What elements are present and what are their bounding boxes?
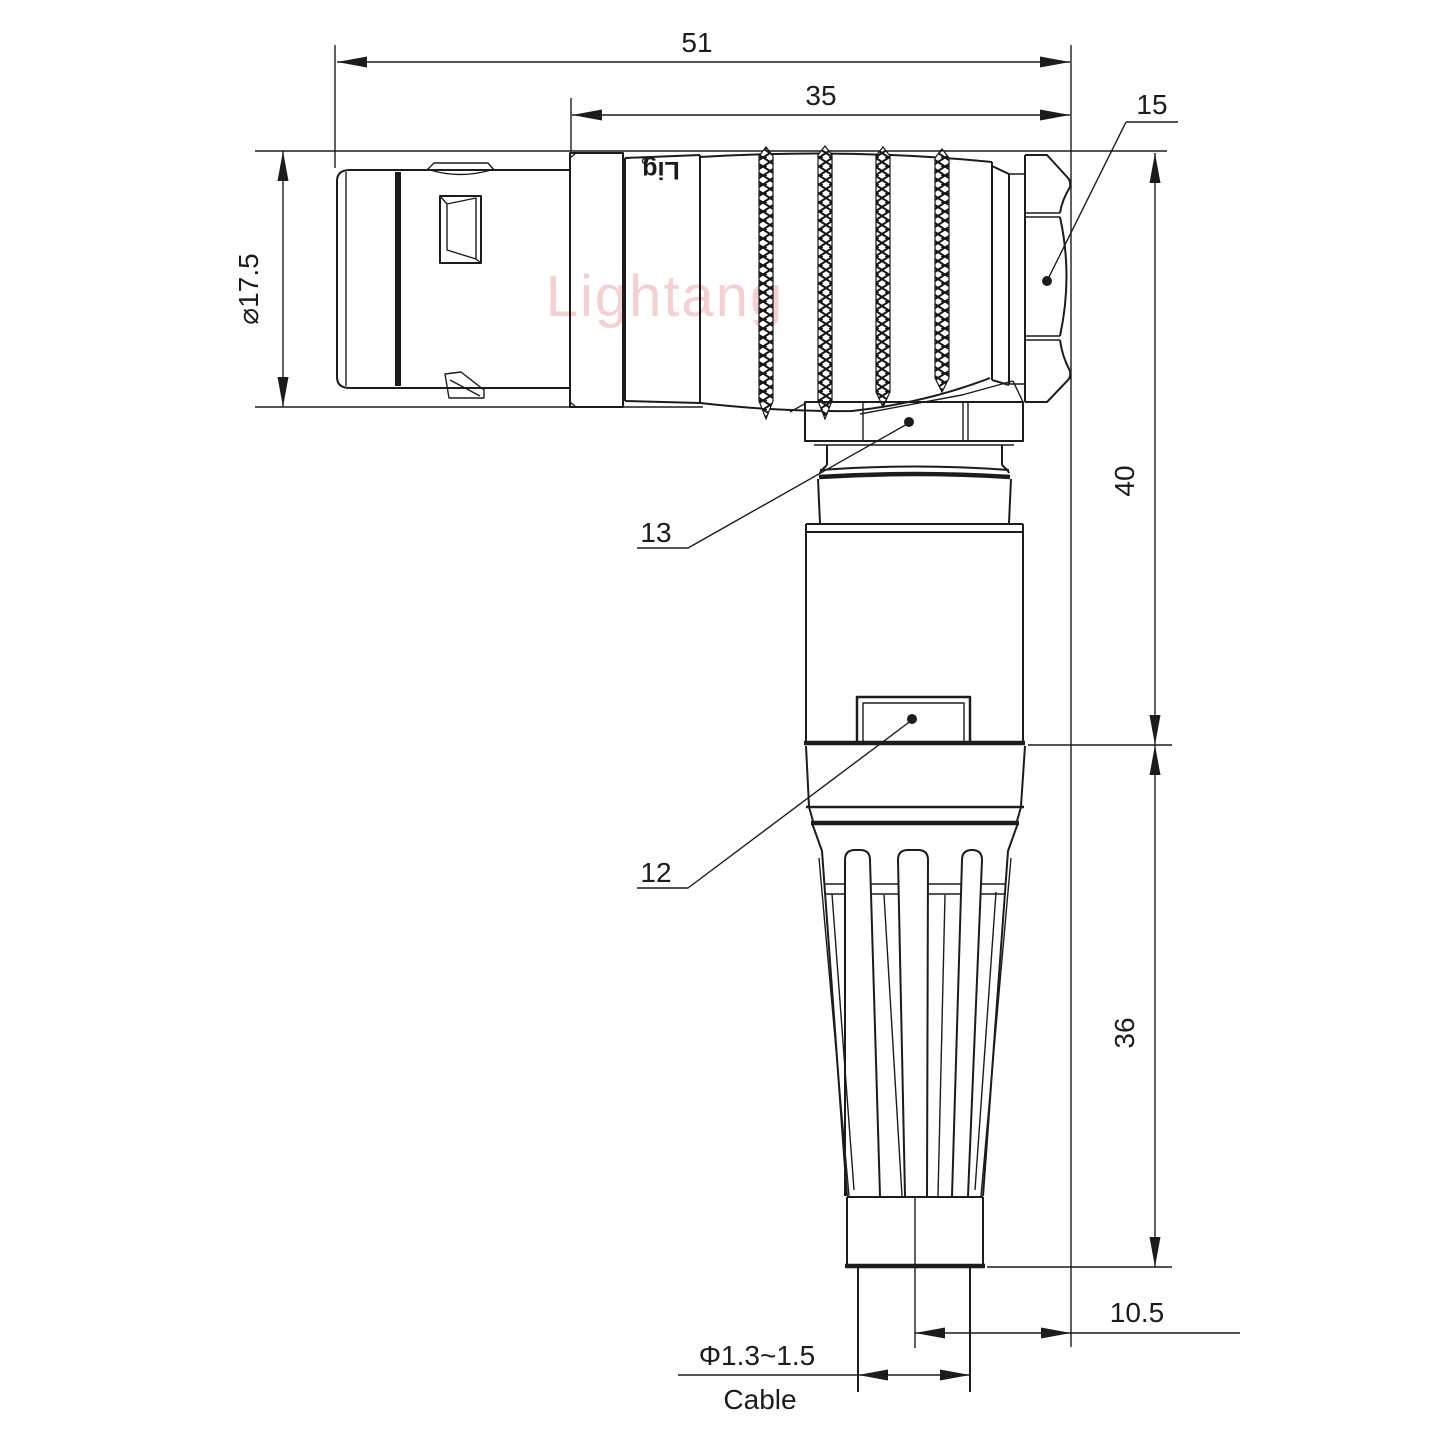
neck-before-hex: [1009, 174, 1025, 384]
cable-label: Cable: [723, 1384, 796, 1415]
leader-dot: [1042, 276, 1052, 286]
callout-12-label: 12: [640, 857, 671, 888]
callout-hex-nut: 15: [1042, 89, 1178, 286]
flare-ring: [818, 465, 1011, 523]
elbow-assembly: [804, 402, 1025, 1392]
shell-groove: [395, 172, 401, 386]
boot-shoulder: [806, 746, 1025, 823]
knurl-band: [935, 149, 949, 392]
knurl-band: [876, 147, 890, 407]
strain-relief-boot: [812, 823, 1018, 1196]
elbow-body: [804, 524, 1025, 743]
leader-dot: [907, 714, 917, 724]
plug-front-shell: [337, 163, 570, 398]
callout-15-label: 15: [1136, 89, 1167, 120]
collar-nut: [805, 402, 1023, 445]
dim-10-5-label: 10.5: [1110, 1297, 1165, 1328]
dimension-heights: 40 36: [1109, 153, 1161, 1267]
boot-rib: [952, 850, 982, 1196]
dimension-cable-diameter: Φ1.3~1.5 Cable: [678, 1340, 970, 1415]
callout-collar: 13: [637, 417, 914, 548]
dimension-cable-offset: 10.5: [915, 1297, 1240, 1339]
key-window: [440, 196, 481, 263]
boot-rib: [898, 850, 928, 1196]
dimension-rear-length: 35: [572, 80, 1070, 121]
knurl-band: [818, 146, 832, 419]
callout-body: 12: [637, 714, 917, 888]
dim-36-label: 36: [1109, 1017, 1140, 1048]
dim-40-label: 40: [1109, 465, 1140, 496]
dim-17-5-label: ⌀17.5: [233, 253, 264, 324]
leader-dot: [904, 417, 914, 427]
technical-drawing-page: Lightang: [0, 0, 1440, 1440]
dim-cable-range-label: Φ1.3~1.5: [699, 1340, 816, 1371]
knurl-band: [759, 147, 773, 419]
callout-13-label: 13: [640, 517, 671, 548]
dimension-front-diameter: ⌀17.5: [233, 151, 289, 407]
dim-35-label: 35: [805, 80, 836, 111]
latch-tab: [445, 372, 484, 398]
dim-51-label: 51: [681, 27, 712, 58]
watermark-text: Lightang: [546, 264, 785, 329]
connector-drawing-canvas: Lightang: [0, 0, 1440, 1440]
dimension-overall-length: 51: [337, 27, 1070, 68]
